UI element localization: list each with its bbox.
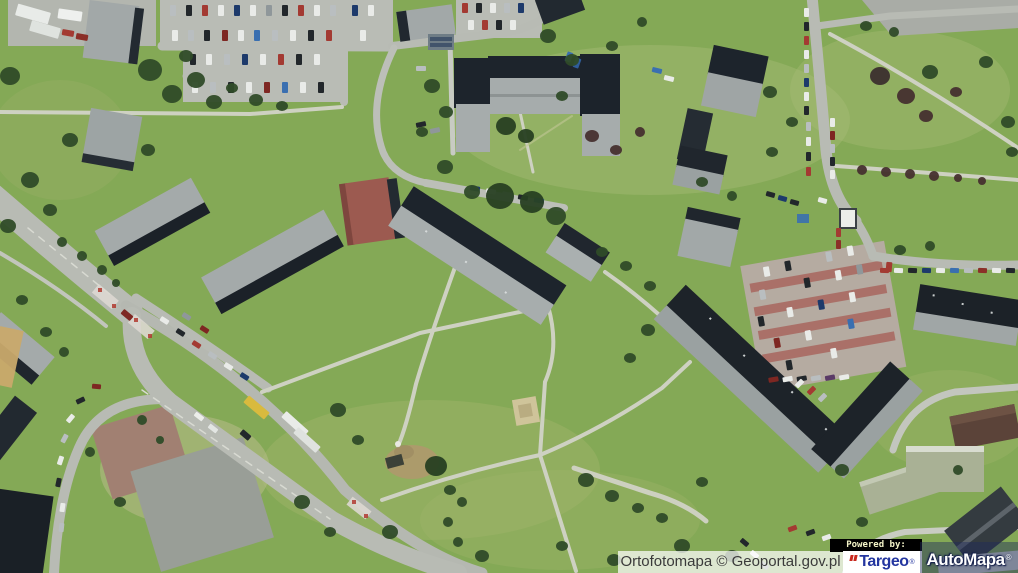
kiosk: [841, 210, 855, 227]
tree: [656, 513, 668, 523]
tree: [518, 129, 534, 143]
tree: [496, 117, 516, 135]
tree: [953, 465, 963, 475]
car: [830, 144, 835, 153]
roof-vent: [962, 303, 964, 305]
car: [298, 5, 304, 16]
car: [950, 268, 959, 273]
targeo-registered-mark: ®: [909, 559, 914, 566]
car: [804, 36, 809, 45]
tree: [16, 295, 28, 305]
car: [250, 5, 256, 16]
car: [430, 127, 441, 134]
car: [282, 5, 288, 16]
car: [807, 386, 817, 396]
rock: [395, 441, 401, 447]
tree: [635, 127, 645, 137]
car: [806, 152, 811, 161]
car: [805, 529, 815, 537]
kindergarten-roof: [906, 446, 984, 492]
car: [266, 5, 272, 16]
car: [330, 5, 336, 16]
car: [804, 64, 809, 73]
car: [308, 30, 314, 41]
car: [936, 268, 945, 273]
tree: [294, 495, 310, 509]
car: [60, 433, 69, 443]
kindergarten-edge: [906, 446, 984, 452]
school-wing-shadow: [454, 58, 490, 108]
tree: [424, 79, 440, 93]
tree: [77, 251, 87, 261]
tree: [856, 517, 868, 527]
car: [290, 30, 296, 41]
tree: [486, 183, 514, 209]
tree: [137, 415, 147, 425]
building-roof: [201, 210, 343, 314]
tree: [226, 83, 238, 93]
tree: [696, 177, 708, 187]
car: [804, 92, 809, 101]
crosswalk-mark: [98, 288, 102, 292]
tree: [950, 87, 962, 97]
car: [818, 197, 828, 204]
car: [468, 20, 474, 30]
tree: [475, 550, 489, 562]
car: [186, 5, 192, 16]
footpath: [262, 306, 548, 392]
tree: [894, 245, 906, 255]
car: [416, 121, 427, 128]
tree: [786, 117, 798, 127]
car: [416, 66, 426, 71]
tree: [138, 59, 162, 81]
tree: [610, 145, 622, 155]
crosswalk-mark: [148, 334, 152, 338]
tree: [637, 17, 647, 27]
car: [836, 228, 841, 237]
car: [806, 137, 811, 146]
car: [476, 3, 482, 13]
car: [188, 30, 194, 41]
roof-vent: [991, 312, 993, 314]
orthophoto-map[interactable]: [0, 0, 1018, 573]
car: [804, 8, 809, 17]
tree: [727, 191, 737, 201]
car: [766, 191, 776, 198]
tree: [929, 171, 939, 181]
solar-roof: [428, 34, 454, 50]
tree: [179, 50, 193, 62]
roof-vent: [933, 294, 935, 296]
car: [778, 195, 788, 202]
tree: [0, 67, 20, 85]
tree: [43, 204, 57, 216]
car: [314, 5, 320, 16]
tree: [141, 144, 155, 156]
car: [318, 82, 324, 93]
automapa-logo[interactable]: AutoMapa ®: [920, 542, 1018, 573]
handicap-spot: [797, 214, 809, 223]
car: [504, 3, 510, 13]
car: [210, 82, 216, 93]
car: [830, 118, 835, 127]
tree: [21, 172, 39, 188]
crosswalk-mark: [134, 318, 138, 322]
car: [238, 30, 244, 41]
car: [496, 20, 502, 30]
car: [264, 82, 270, 93]
tree: [416, 127, 428, 137]
tree: [187, 72, 205, 88]
drive-rightpark: [873, 256, 1018, 265]
car: [462, 3, 468, 13]
school-ridge: [488, 94, 586, 97]
tree: [919, 110, 933, 122]
tree: [206, 95, 222, 109]
tree: [464, 185, 480, 199]
car: [790, 199, 800, 206]
tree: [382, 525, 398, 539]
tree: [585, 130, 599, 142]
tree: [556, 91, 568, 101]
car: [368, 5, 374, 16]
car: [360, 30, 366, 41]
tree: [540, 29, 556, 43]
car: [204, 30, 210, 41]
tree: [763, 86, 777, 98]
car: [490, 3, 496, 13]
tree: [162, 85, 182, 103]
car: [300, 82, 306, 93]
tree: [1006, 147, 1018, 157]
tree: [978, 177, 986, 185]
tree: [556, 541, 568, 551]
car: [894, 268, 903, 273]
tree: [97, 265, 107, 275]
car: [806, 122, 811, 131]
crosswalk-mark: [112, 304, 116, 308]
solar-panel: [430, 37, 452, 41]
parking-aisle: [162, 46, 392, 47]
car: [482, 20, 488, 30]
tree: [112, 279, 120, 287]
car: [518, 3, 524, 13]
car: [978, 268, 987, 273]
car: [199, 325, 209, 334]
car: [1006, 268, 1015, 273]
car: [224, 54, 230, 65]
tree: [1001, 116, 1015, 128]
car: [739, 538, 749, 548]
targeo-text: Targeo: [859, 553, 908, 571]
tree: [979, 56, 993, 68]
car: [278, 54, 284, 65]
map-viewport[interactable]: Ortofotomapa © Geoportal.gov.pl Powered …: [0, 0, 1018, 573]
car: [202, 5, 208, 16]
tree: [0, 219, 16, 233]
tree: [696, 477, 708, 487]
car: [818, 393, 828, 403]
tree: [881, 167, 891, 177]
sandbox-inner: [518, 403, 533, 418]
school-wing-shadow: [580, 54, 620, 116]
tree: [59, 347, 69, 357]
automapa-registered-mark: ®: [1006, 543, 1012, 573]
car: [787, 525, 797, 533]
tree: [889, 27, 899, 37]
tree: [546, 207, 566, 225]
car: [992, 268, 1001, 273]
tree: [114, 497, 126, 507]
car: [804, 22, 809, 31]
tree: [605, 490, 619, 502]
tree: [565, 54, 579, 66]
tree: [324, 527, 336, 537]
car: [880, 268, 889, 273]
car: [804, 50, 809, 59]
tree: [620, 261, 632, 271]
tree: [860, 21, 872, 31]
car: [260, 54, 266, 65]
tree: [596, 247, 608, 257]
tree: [457, 497, 467, 507]
building-shadow: [0, 396, 37, 475]
car: [272, 30, 278, 41]
tree: [766, 147, 778, 157]
tree: [644, 281, 656, 291]
tree: [857, 165, 867, 175]
tree: [444, 485, 456, 495]
automapa-text: AutoMapa: [926, 547, 1004, 573]
tree: [870, 67, 890, 85]
tree: [520, 191, 544, 213]
car: [282, 82, 288, 93]
car: [254, 30, 260, 41]
car: [908, 268, 917, 273]
car: [836, 240, 841, 249]
car: [830, 157, 835, 166]
map-attribution: Ortofotomapa © Geoportal.gov.pl: [618, 551, 843, 573]
tree: [352, 435, 364, 445]
tree: [624, 353, 636, 363]
car: [55, 478, 62, 488]
tree: [439, 106, 453, 118]
tree: [57, 237, 67, 247]
tree: [249, 94, 263, 106]
car: [804, 78, 809, 87]
car: [830, 170, 835, 179]
car: [57, 455, 65, 465]
car: [66, 413, 76, 423]
tree: [156, 436, 164, 444]
tree: [606, 41, 618, 51]
car: [242, 54, 248, 65]
car: [222, 30, 228, 41]
footpath: [545, 306, 553, 382]
solar-panel: [430, 43, 452, 47]
targeo-logo[interactable]: Targeo ®: [843, 551, 922, 573]
tree: [835, 464, 849, 476]
car: [296, 54, 302, 65]
crosswalk-mark: [352, 500, 356, 504]
car: [172, 30, 178, 41]
tree: [578, 473, 594, 487]
car: [206, 54, 212, 65]
car: [75, 396, 85, 404]
tree: [905, 169, 915, 179]
targeo-quote-icon: [850, 555, 858, 561]
school-wing-roof: [456, 104, 490, 152]
car: [804, 106, 809, 115]
tree: [954, 174, 962, 182]
car: [326, 30, 332, 41]
tree: [437, 160, 453, 174]
tree: [62, 133, 78, 147]
tree: [897, 88, 915, 104]
car: [92, 384, 101, 390]
car: [510, 20, 516, 30]
building-shadow: [0, 488, 54, 573]
car: [922, 268, 931, 273]
tree: [925, 241, 935, 251]
tree: [276, 101, 288, 111]
car: [181, 312, 191, 321]
tree: [632, 503, 644, 513]
car: [314, 54, 320, 65]
tree: [922, 65, 938, 79]
car: [352, 5, 358, 16]
tree: [330, 403, 346, 417]
tree: [85, 447, 95, 457]
car: [830, 131, 835, 140]
tree: [443, 517, 453, 527]
crosswalk-mark: [364, 514, 368, 518]
car: [234, 5, 240, 16]
tree: [641, 324, 655, 336]
tree: [40, 327, 52, 337]
car: [806, 167, 811, 176]
car: [246, 82, 252, 93]
car: [218, 5, 224, 16]
path-school-side: [450, 40, 453, 153]
tree: [453, 537, 463, 547]
tree: [425, 456, 447, 476]
car: [964, 268, 973, 273]
car: [59, 523, 65, 532]
car: [170, 5, 176, 16]
